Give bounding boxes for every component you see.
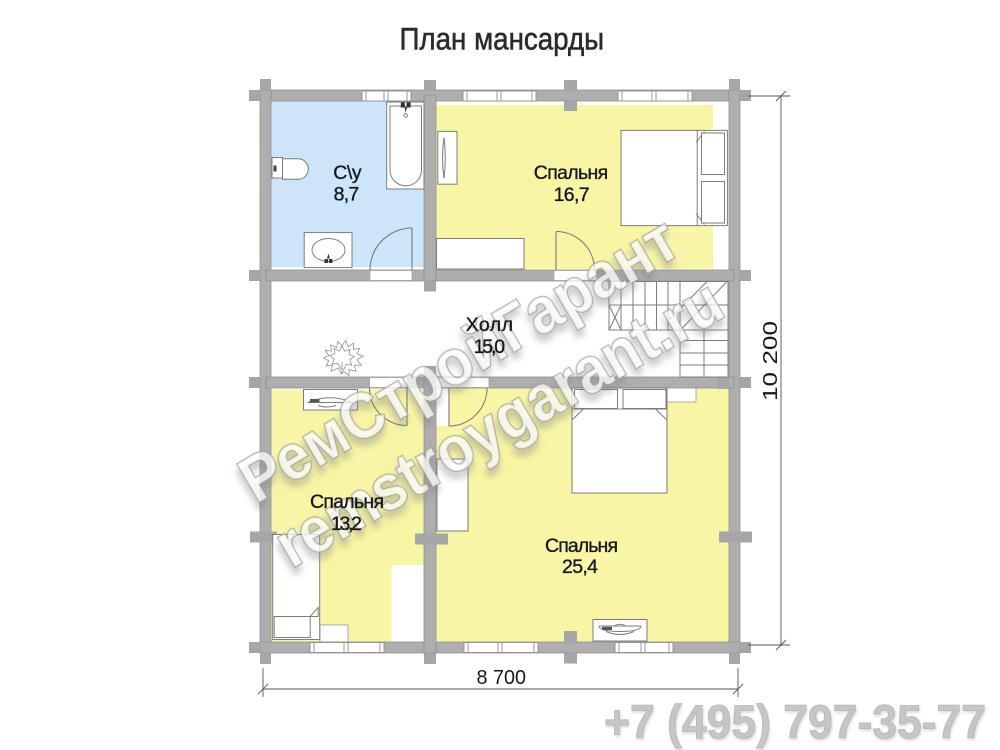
svg-text:Спальня: Спальня — [534, 162, 608, 184]
svg-text:16,7: 16,7 — [554, 184, 590, 206]
svg-text:8,7: 8,7 — [334, 184, 360, 206]
svg-text:Спальня: Спальня — [545, 535, 618, 557]
svg-text:Холл: Холл — [466, 314, 513, 336]
svg-text:С\у: С\у — [333, 162, 362, 184]
svg-text:25,4: 25,4 — [562, 556, 598, 578]
svg-text:План мансарды: План мансарды — [400, 21, 605, 57]
svg-text:13,2: 13,2 — [331, 513, 362, 535]
svg-text:+7 (495) 797-35-77: +7 (495) 797-35-77 — [604, 695, 986, 748]
svg-text:Спальня: Спальня — [310, 491, 384, 513]
svg-text:8 700: 8 700 — [477, 667, 527, 689]
svg-text:10 200: 10 200 — [760, 321, 782, 401]
svg-text:15,0: 15,0 — [474, 336, 506, 358]
